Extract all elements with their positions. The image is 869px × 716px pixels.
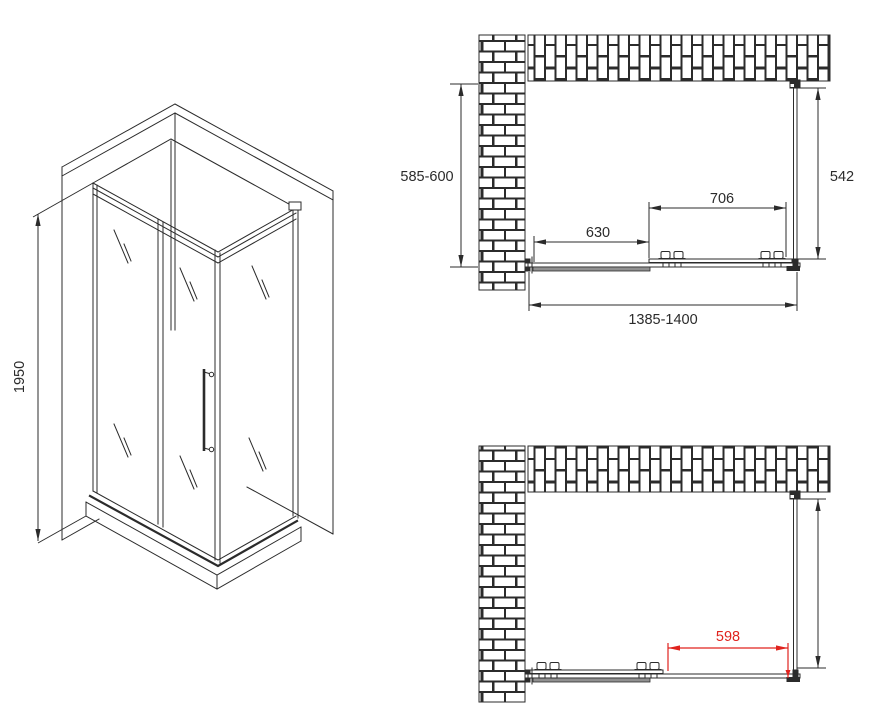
glass-shine-marks <box>114 230 269 489</box>
side-glass-panel <box>790 80 801 267</box>
width-dimension-label: 1385-1400 <box>628 312 697 328</box>
isometric-view: 1950 <box>12 104 333 589</box>
width-dimension: 1385-1400 <box>529 272 797 328</box>
side-dimension-unlabeled <box>797 499 826 668</box>
door-dimension: 706 <box>649 191 786 258</box>
base-tray <box>86 491 301 589</box>
side-panel-wall-bracket <box>289 202 301 210</box>
door-track-open <box>526 663 801 685</box>
door-dimension-label: 706 <box>710 191 734 207</box>
opening-dimension-label: 598 <box>716 629 740 645</box>
opening-dimension: 598 <box>668 629 791 678</box>
plan-view-closed: 585-600 542 706 630 1385-1400 <box>400 35 854 328</box>
sliding-door-open <box>528 670 663 674</box>
plan-view-open: 598 <box>479 446 830 702</box>
left-wall <box>479 35 525 290</box>
sliding-door <box>649 259 792 263</box>
depth-dimension-label: 585-600 <box>400 169 453 185</box>
bracket-notch <box>791 84 795 87</box>
door-handle <box>204 369 214 452</box>
top-wall <box>528 35 830 81</box>
door-track-closed <box>526 252 801 274</box>
height-dimension: 1950 <box>12 183 93 543</box>
side-dimension-label: 542 <box>830 169 854 185</box>
left-wall <box>479 446 525 702</box>
fixed-panel <box>533 267 650 271</box>
enclosure-top-frame <box>93 139 296 330</box>
top-wall <box>528 446 830 492</box>
fixed-panel <box>533 678 650 682</box>
corner-walls <box>62 104 333 540</box>
fixed-panel-dimension-label: 630 <box>586 225 610 241</box>
side-glass-panel <box>790 491 801 678</box>
height-dimension-label: 1950 <box>12 361 28 393</box>
side-dimension: 542 <box>797 88 854 259</box>
shower-enclosure-technical-drawing: 1950 <box>0 0 869 716</box>
bracket-notch <box>791 495 795 498</box>
drawing-sheet: 1950 <box>0 0 869 716</box>
depth-dimension: 585-600 <box>400 84 478 267</box>
fixed-panel-dimension: 630 <box>534 225 649 262</box>
